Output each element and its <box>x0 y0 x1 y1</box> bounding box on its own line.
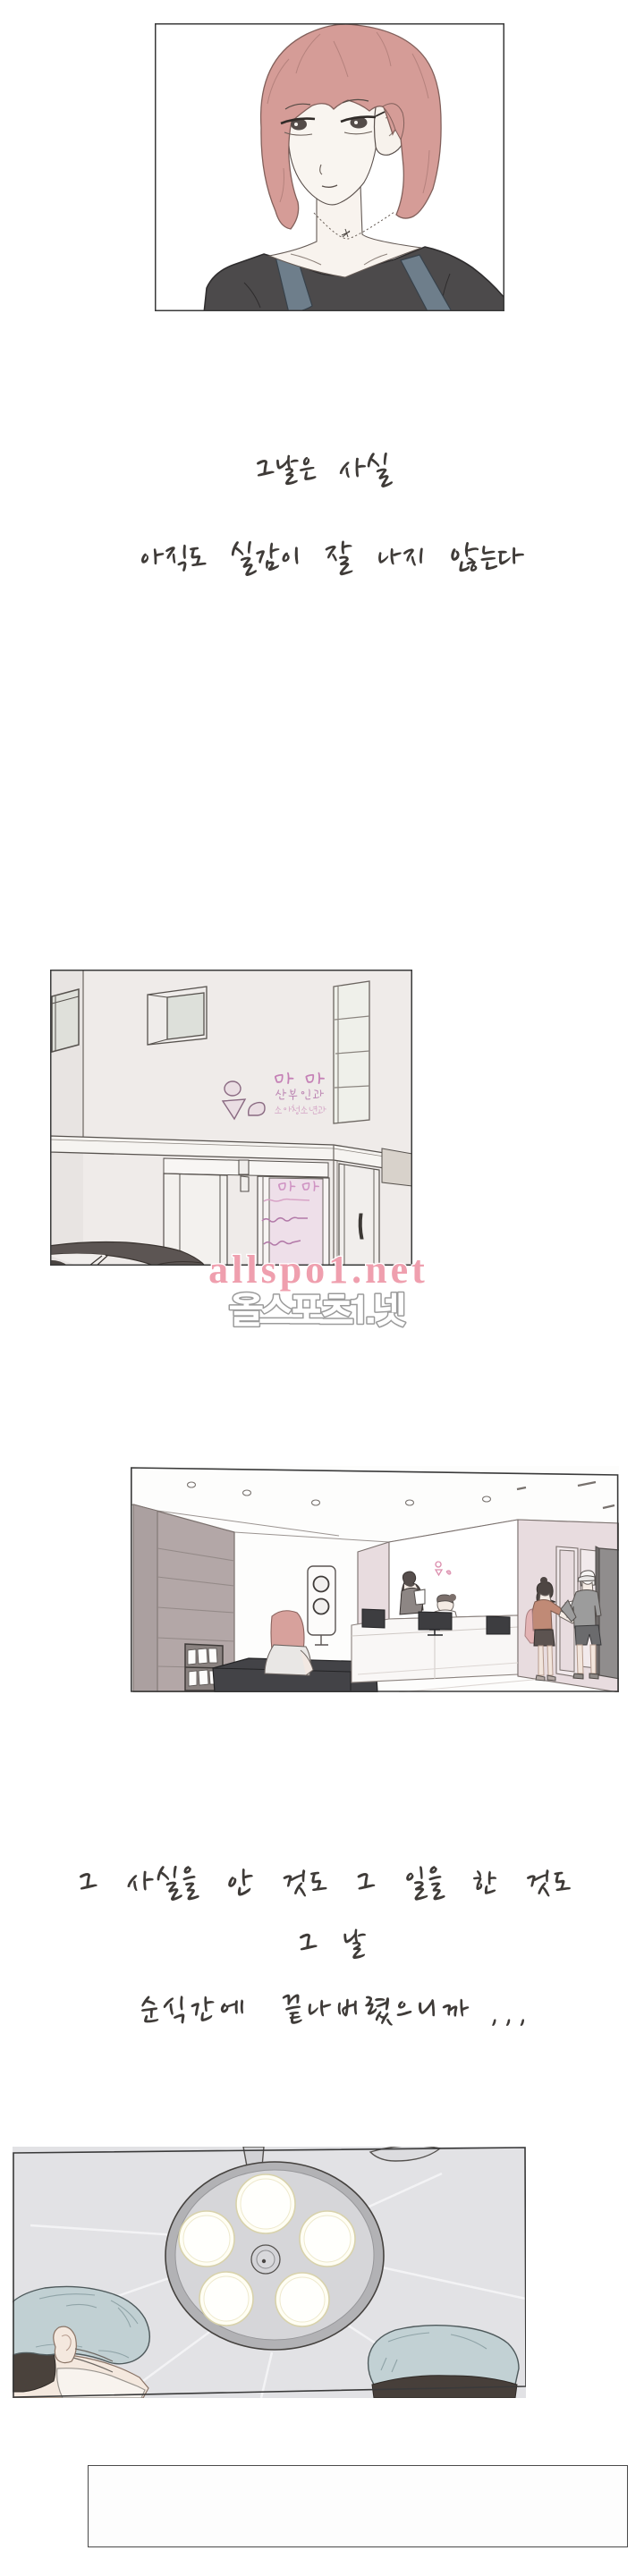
svg-text:allspo1.net: allspo1.net <box>208 1248 428 1292</box>
